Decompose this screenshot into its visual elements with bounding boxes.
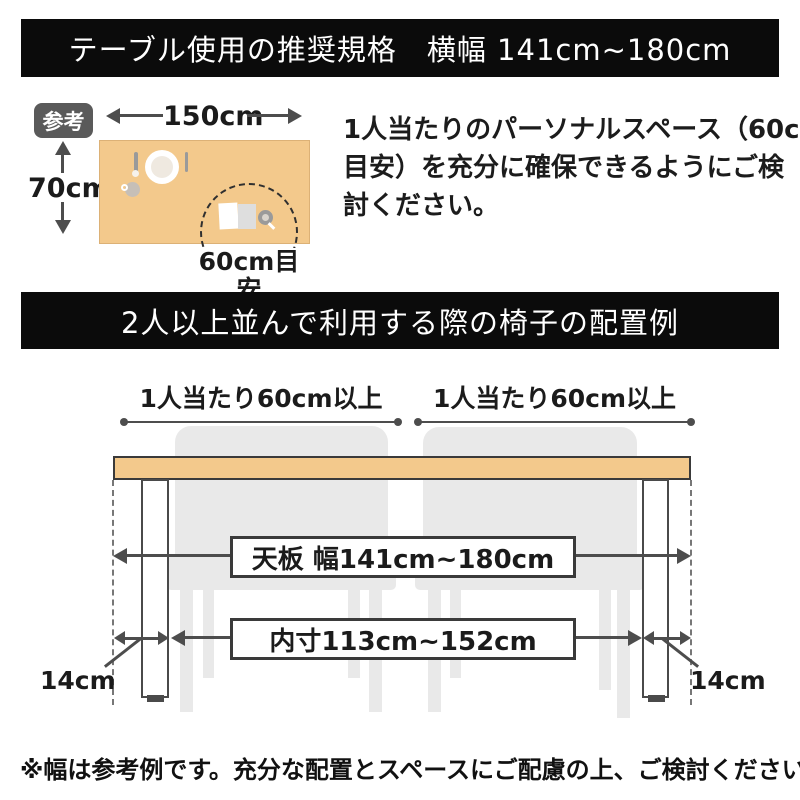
chair-leg xyxy=(203,590,214,678)
per-person-label-right: 1人当たり60cm以上 xyxy=(416,379,693,415)
dimension-line xyxy=(61,153,64,173)
footer-note: ※幅は参考例です。充分な配置とスペースにご配慮の上、ご検討ください。 xyxy=(20,750,790,785)
depth-dimension-label: 70cm xyxy=(28,173,98,204)
dot-icon xyxy=(414,418,422,426)
reference-badge: 参考 xyxy=(34,103,93,138)
page: テーブル使用の推奨規格 横幅 141cm~180cm 参考 150cm 70cm… xyxy=(0,0,800,800)
personal-space-paragraph: 1人当たりのパーソナルスペース（60cm 目安）を充分に確保できるようにご検 討… xyxy=(343,111,793,225)
leg-offset-label-left: 14cm xyxy=(40,666,112,695)
table-foot-left xyxy=(147,695,164,702)
recommended-spec-banner: テーブル使用の推奨規格 横幅 141cm~180cm xyxy=(21,19,779,77)
plate-inner xyxy=(151,156,173,178)
cup-icon xyxy=(125,182,140,197)
paragraph-line: 1人当たりのパーソナルスペース（60cm xyxy=(343,111,793,149)
dimension-line xyxy=(61,202,64,222)
dimension-line xyxy=(183,636,230,639)
book-icon xyxy=(218,203,238,230)
tabletop-width-box: 天板 幅141cm~180cm xyxy=(230,536,576,578)
arrow-right-icon xyxy=(677,548,691,564)
paragraph-line: 目安）を充分に確保できるようにご検 xyxy=(343,149,793,187)
width-dimension-label: 150cm xyxy=(163,101,247,132)
dot-icon xyxy=(394,418,402,426)
table-foot-right xyxy=(648,695,665,702)
arrow-right-icon xyxy=(628,630,642,646)
per-person-label-left: 1人当たり60cm以上 xyxy=(122,379,400,415)
dimension-line xyxy=(125,554,230,557)
arrow-right-icon xyxy=(288,108,302,124)
dimension-line xyxy=(576,554,679,557)
arrow-right-icon xyxy=(158,631,169,645)
spoon-icon xyxy=(134,152,138,172)
dot-icon xyxy=(120,418,128,426)
chair-leg xyxy=(617,590,630,718)
cup-handle xyxy=(121,184,128,191)
book-page xyxy=(238,204,256,229)
chair-leg xyxy=(180,590,193,712)
knife-icon xyxy=(185,152,188,172)
table-leg-right xyxy=(642,479,669,698)
measure-line-left xyxy=(122,421,400,423)
chair-layout-banner: 2人以上並んで利用する際の椅子の配置例 xyxy=(21,292,779,349)
inner-width-box: 内寸113cm~152cm xyxy=(230,618,576,660)
dimension-line xyxy=(247,114,290,117)
arrow-down-icon xyxy=(55,220,71,234)
tabletop-bar xyxy=(113,456,691,480)
dot-icon xyxy=(687,418,695,426)
spoon-bowl-icon xyxy=(132,170,139,177)
table-leg-left xyxy=(141,479,169,698)
dimension-line xyxy=(576,636,630,639)
chair-leg xyxy=(599,590,611,690)
paragraph-line: 討ください。 xyxy=(343,187,793,225)
arrow-right-icon xyxy=(680,631,691,645)
plate-icon xyxy=(145,150,179,184)
leg-offset-label-right: 14cm xyxy=(690,666,762,695)
dimension-line xyxy=(118,114,163,117)
measure-line-right xyxy=(416,421,693,423)
